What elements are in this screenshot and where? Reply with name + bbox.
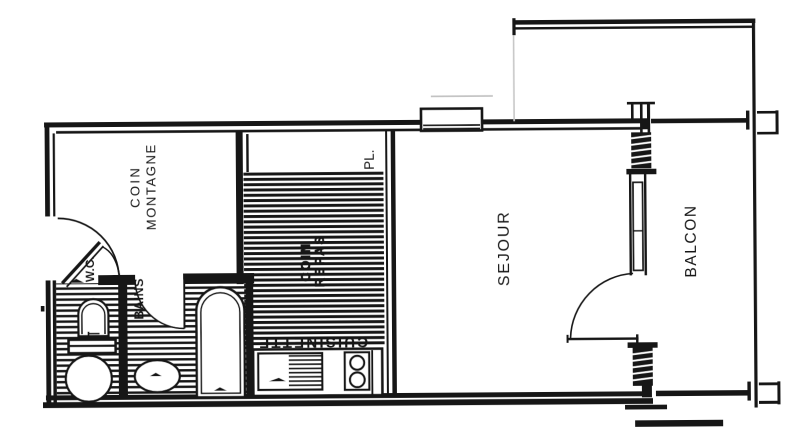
svg-text:COIN: COIN (127, 166, 142, 208)
svg-text:CUISINETTE: CUISINETTE (257, 333, 368, 351)
svg-text:BALCON: BALCON (683, 204, 701, 277)
svg-text:PL.: PL. (362, 150, 377, 170)
svg-text:REPAS: REPAS (313, 234, 327, 287)
svg-text:W.C.: W.C. (83, 256, 97, 282)
svg-text:BAINS: BAINS (132, 278, 146, 320)
svg-text:COIN: COIN (299, 242, 313, 282)
svg-text:MONTAGNE: MONTAGNE (143, 143, 159, 230)
svg-text:SEJOUR: SEJOUR (496, 210, 514, 286)
